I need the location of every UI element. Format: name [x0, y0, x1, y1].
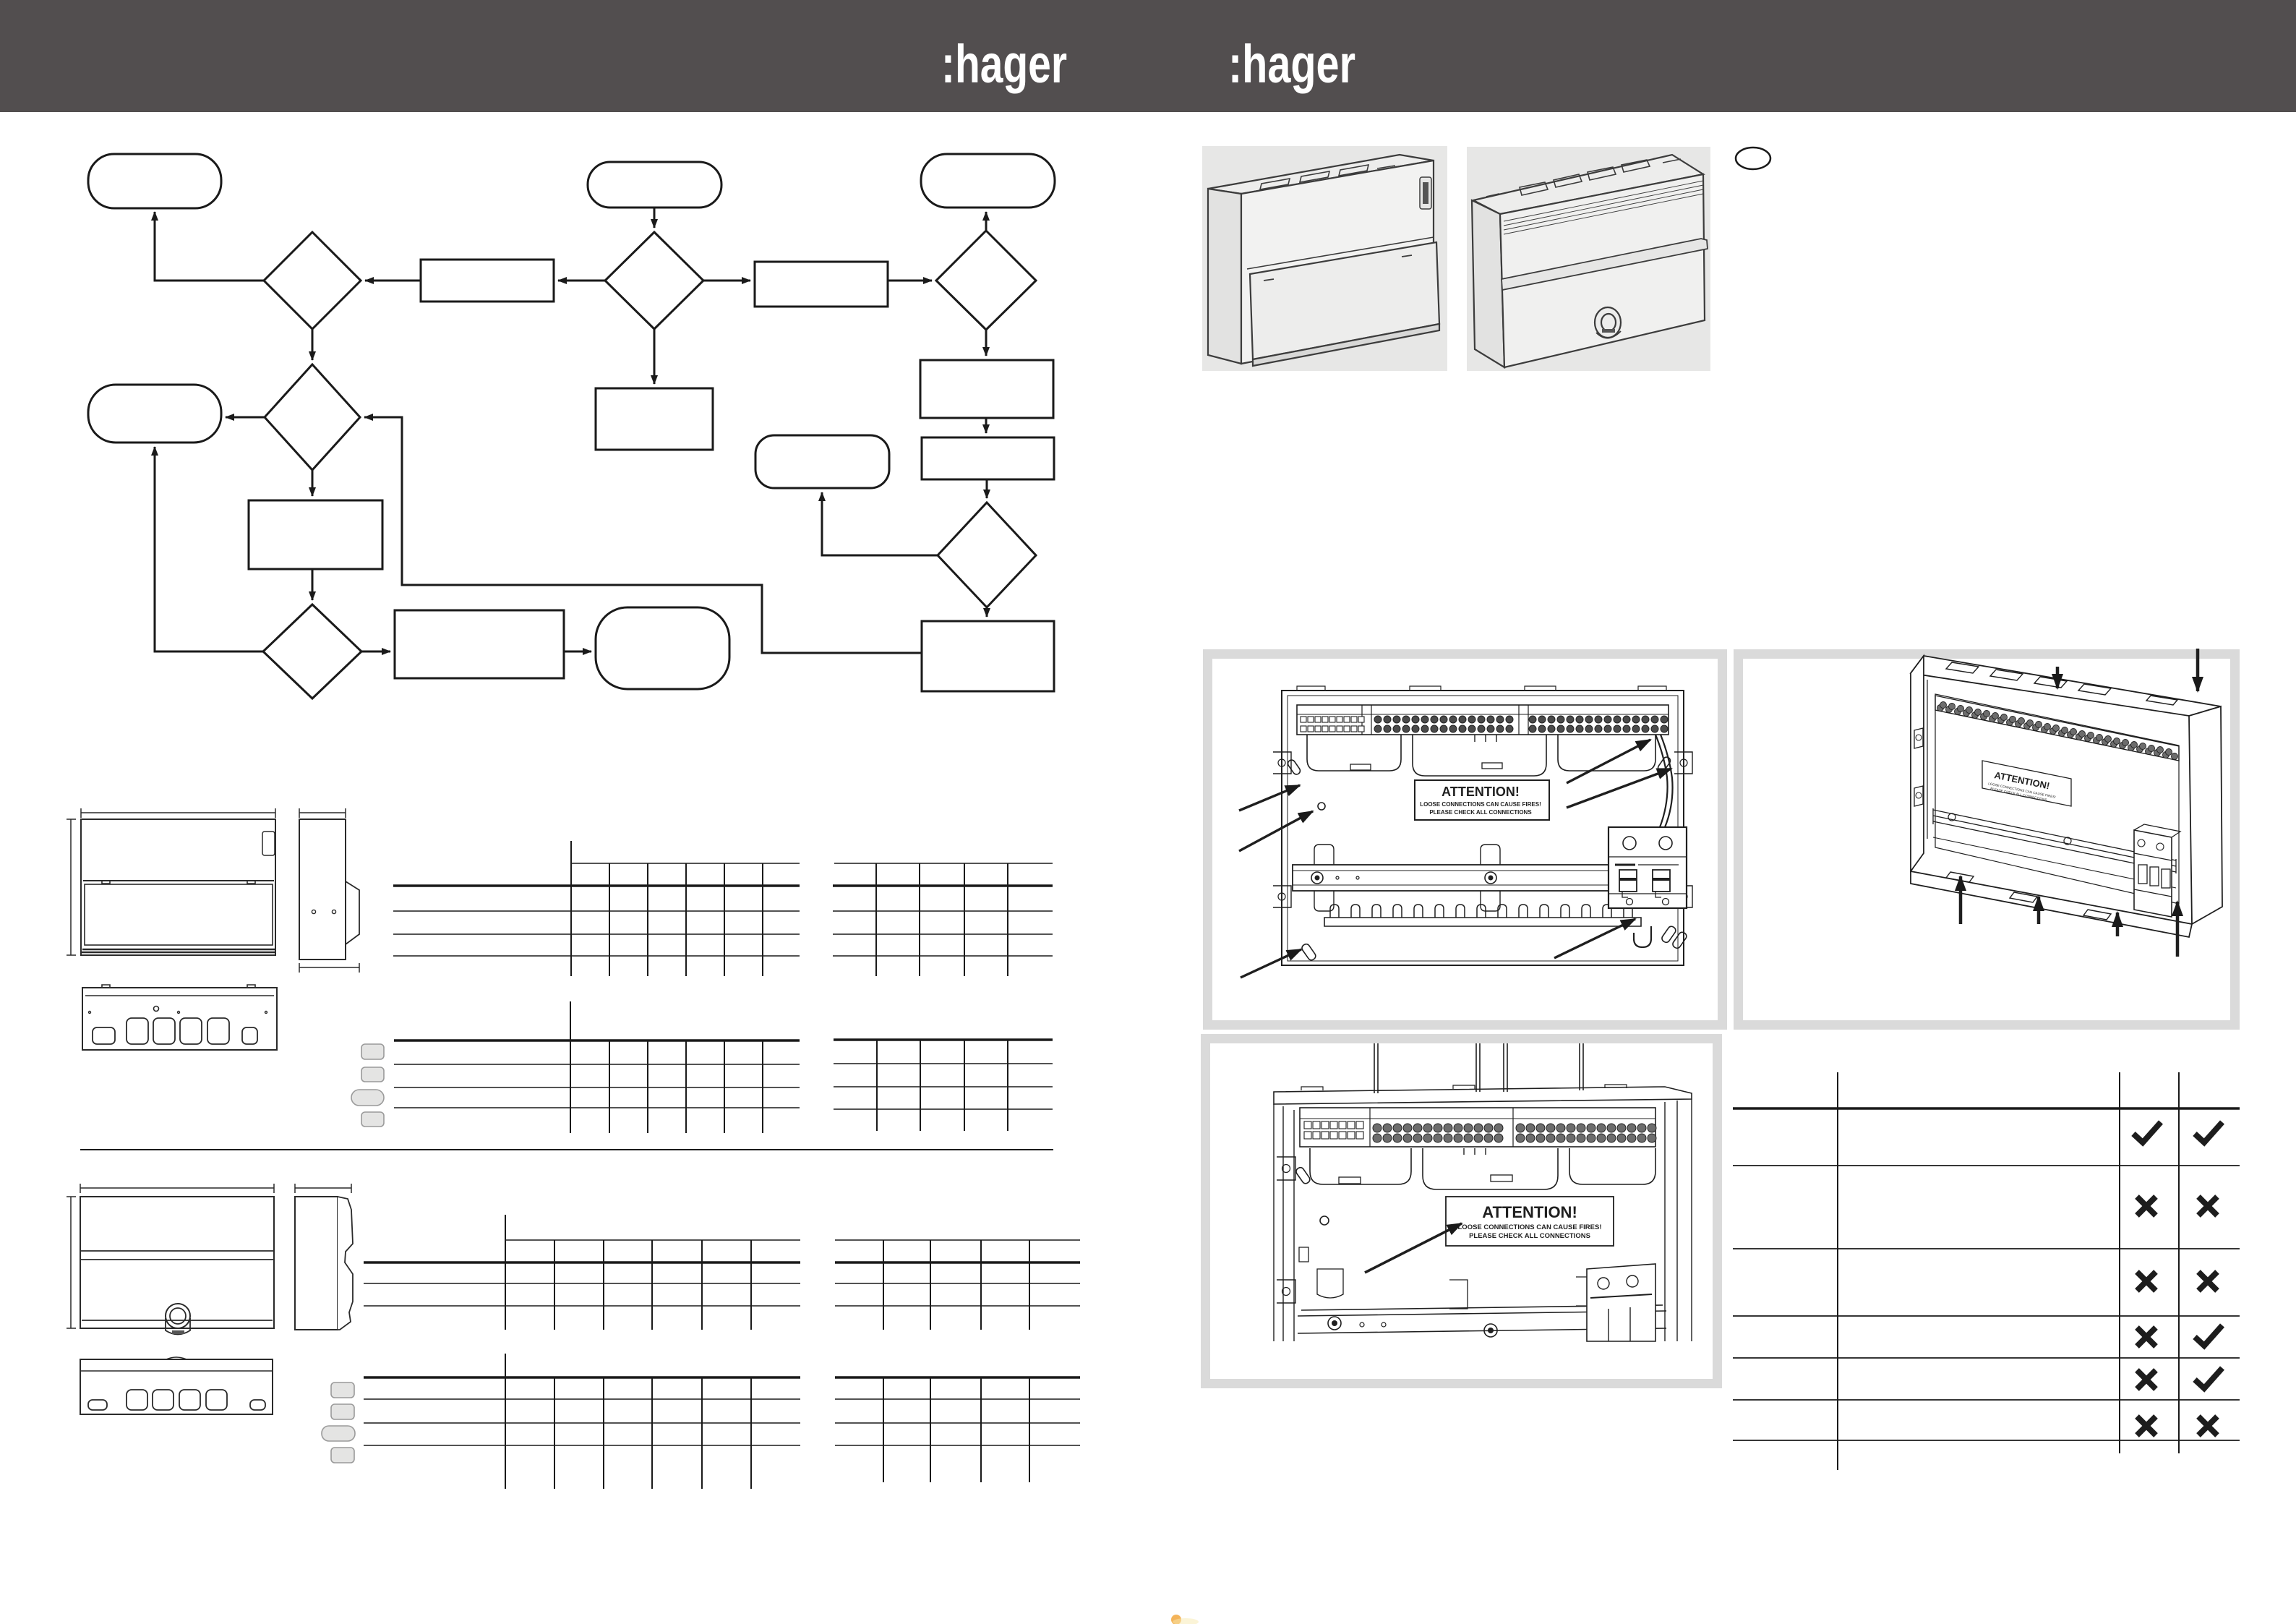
svg-text:ATTENTION!: ATTENTION!	[1442, 785, 1520, 799]
svg-text:LOOSE CONNECTIONS CAN CAUSE FI: LOOSE CONNECTIONS CAN CAUSE FIRES!	[1420, 801, 1541, 808]
svg-text::hager: :hager	[941, 34, 1067, 94]
svg-text:PLEASE CHECK ALL CONNECTIONS: PLEASE CHECK ALL CONNECTIONS	[1469, 1232, 1590, 1240]
svg-text::hager: :hager	[1228, 34, 1355, 94]
svg-text:ATTENTION!: ATTENTION!	[1482, 1203, 1577, 1221]
svg-text:PLEASE CHECK ALL CONNECTIONS: PLEASE CHECK ALL CONNECTIONS	[1429, 809, 1532, 816]
svg-text:LOOSE CONNECTIONS CAN CAUSE FI: LOOSE CONNECTIONS CAN CAUSE FIRES!	[1458, 1223, 1602, 1231]
